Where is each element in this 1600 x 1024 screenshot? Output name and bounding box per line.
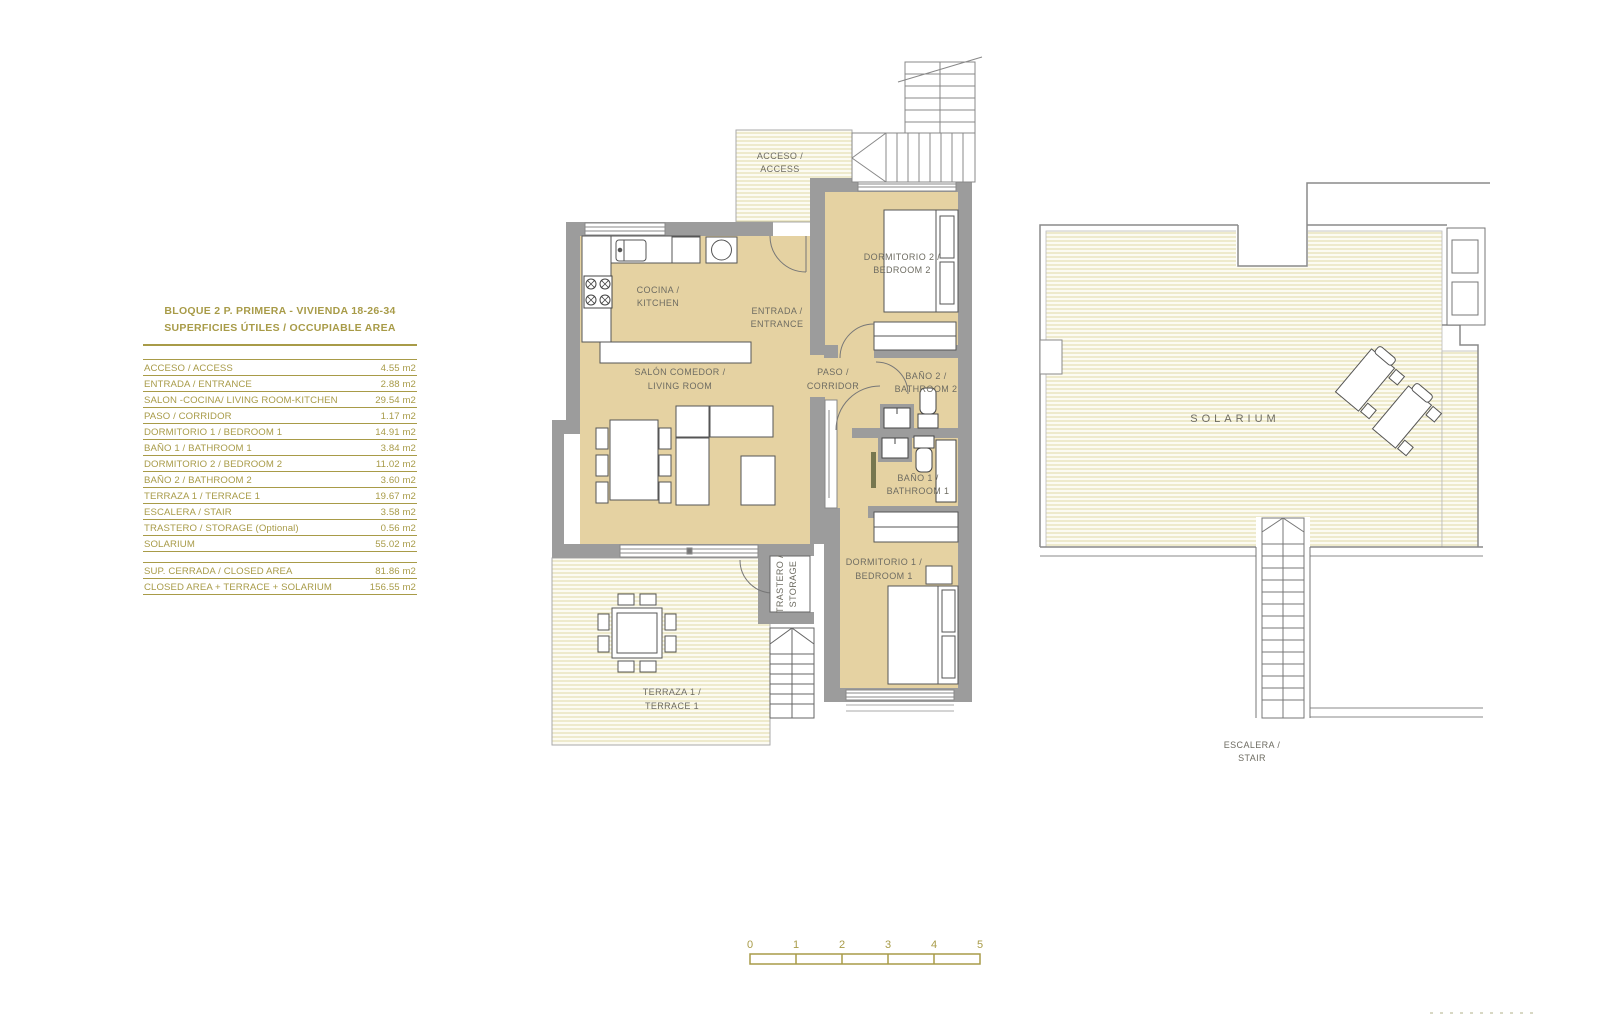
- armchair: [741, 456, 775, 505]
- ac-units: [1447, 228, 1485, 325]
- washer-icon: [706, 237, 737, 263]
- svg-text:LIVING ROOM: LIVING ROOM: [648, 381, 712, 391]
- scale-tick-5: 5: [977, 939, 983, 951]
- label-dormitorio2: DORMITORIO 2 /: [864, 252, 941, 262]
- svg-text:BEDROOM 1: BEDROOM 1: [855, 571, 913, 581]
- svg-text:TERRACE 1: TERRACE 1: [645, 701, 699, 711]
- toilet-icon: [918, 414, 938, 428]
- scale-bar: 0 1 2 3 4 5: [747, 939, 983, 964]
- solarium-plan: SOLARIUM ESCALERA / STAIR: [1040, 183, 1490, 763]
- roof-notch: [1236, 224, 1308, 266]
- ac-unit-icon: [1452, 240, 1478, 273]
- scale-tick-3: 3: [885, 939, 891, 951]
- floorplan-page: BLOQUE 2 P. PRIMERA - VIVIENDA 18-26-34 …: [0, 0, 1600, 1024]
- svg-text:BATHROOM 2: BATHROOM 2: [895, 384, 958, 394]
- label-trastero: TRASTERO /: [775, 555, 785, 613]
- kitchen-island: [600, 342, 751, 363]
- svg-text:BATHROOM 1: BATHROOM 1: [887, 486, 950, 496]
- toilet-icon: [914, 436, 934, 448]
- label-dormitorio1: DORMITORIO 1 /: [846, 557, 923, 567]
- label-bano1: BAÑO 1 /: [897, 473, 938, 483]
- solarium-stair: [1256, 517, 1310, 718]
- corridor-glass-panel: [825, 400, 837, 508]
- livingroom-furniture: [596, 406, 775, 505]
- dining-table: [610, 420, 658, 500]
- floorplan-drawing: ACCESO / ACCESS COCINA / KITCHEN ENTRADA…: [0, 0, 1600, 1024]
- nightstand: [926, 566, 952, 584]
- svg-text:BEDROOM 2: BEDROOM 2: [873, 265, 931, 275]
- label-paso: PASO /: [817, 367, 849, 377]
- svg-text:KITCHEN: KITCHEN: [637, 298, 679, 308]
- label-entrada: ENTRADA /: [751, 306, 802, 316]
- apartment-plan: ACCESO / ACCESS COCINA / KITCHEN ENTRADA…: [552, 57, 982, 745]
- label-cocina: COCINA /: [637, 285, 680, 295]
- svg-text:STAIR: STAIR: [1238, 753, 1266, 763]
- svg-text:STORAGE: STORAGE: [788, 561, 798, 608]
- hob-icon: [584, 276, 612, 308]
- label-solarium: SOLARIUM: [1190, 413, 1279, 425]
- interior-stair: [770, 628, 814, 718]
- fridge-icon: [672, 237, 700, 263]
- label-acceso: ACCESO /: [757, 151, 803, 161]
- ac-unit-icon: [1452, 282, 1478, 315]
- scale-tick-2: 2: [839, 939, 845, 951]
- sofa: [676, 406, 709, 437]
- label-salon: SALÓN COMEDOR /: [634, 367, 725, 377]
- solarium-hatch: [1046, 231, 1442, 547]
- label-bano2: BAÑO 2 /: [905, 371, 946, 381]
- label-escalera: ESCALERA /: [1224, 740, 1281, 750]
- svg-text:CORRIDOR: CORRIDOR: [807, 381, 859, 391]
- solarium-left-opening: [1040, 340, 1062, 374]
- scale-tick-4: 4: [931, 939, 937, 951]
- svg-text:ACCESS: ACCESS: [760, 164, 799, 174]
- scale-tick-1: 1: [793, 939, 799, 951]
- label-terraza: TERRAZA 1 /: [643, 687, 702, 697]
- exterior-stair: [852, 57, 982, 182]
- svg-text:ENTRANCE: ENTRANCE: [751, 319, 804, 329]
- scale-tick-0: 0: [747, 939, 753, 951]
